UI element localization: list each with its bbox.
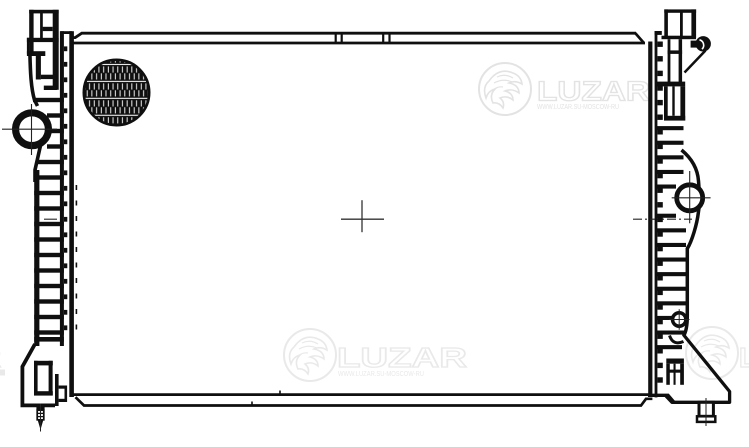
svg-text:WWW.LUZAR.SU-MOSCOW-RU: WWW.LUZAR.SU-MOSCOW-RU: [537, 102, 619, 111]
svg-text:WWW.LUZAR.SU-MOSCOW-RU: WWW.LUZAR.SU-MOSCOW-RU: [338, 369, 424, 378]
svg-text:LU: LU: [739, 342, 749, 373]
svg-text:R: R: [0, 342, 1, 373]
